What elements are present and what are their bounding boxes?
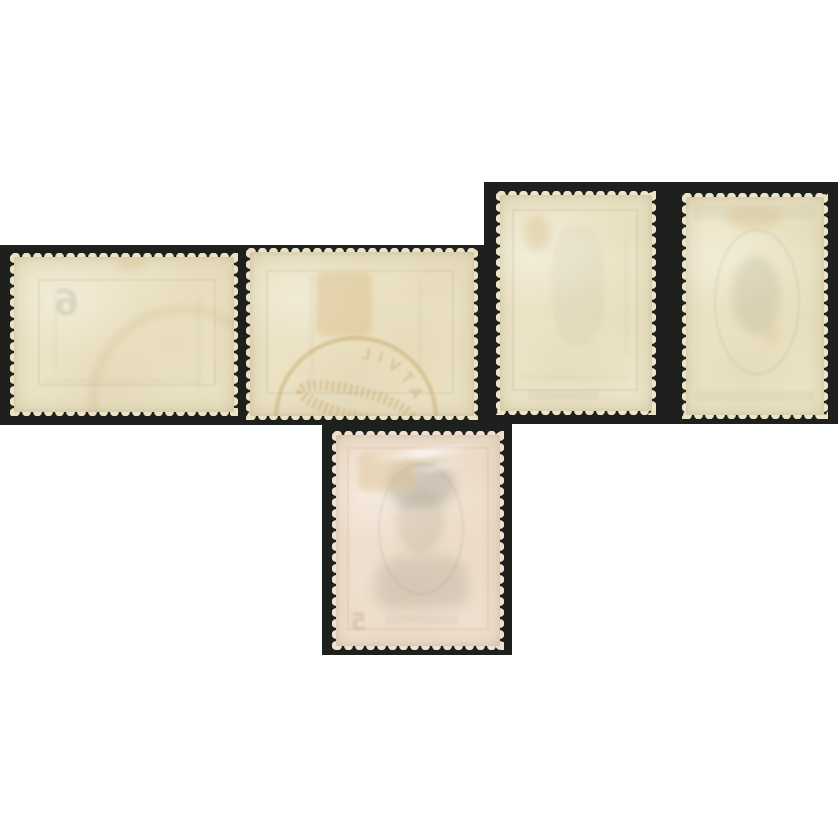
ghost-band [528,391,598,399]
ghost-portrait-face [396,489,444,553]
postmark-letters: ATVIL [354,344,426,401]
stamp-1-gum-side: 6 [14,257,234,412]
stamp-4 [682,193,828,419]
stamp-3-gum-side [500,195,652,411]
postmark-killer-bars [299,378,414,416]
postmark-showthrough: ATVIL [250,252,474,416]
ghost-band [625,235,628,355]
tan-smudge [524,215,550,251]
stamp-2-gum-side: ATVIL [250,252,474,416]
tan-smudge [726,207,782,229]
ghost-numeral-6: 6 [53,283,79,325]
stamp-5-gum-side: 5 [336,435,500,646]
ghost-band [386,616,458,624]
ghost-band [552,225,604,345]
stamp-1: 6 [10,253,238,416]
stamp-5: 5 [332,431,504,650]
stamp-photo: 6 ATVIL [0,0,840,840]
ghost-portrait-bust [376,555,468,607]
tan-smudge [118,259,144,269]
ghost-band [696,391,814,401]
ghost-portrait-shading [732,255,780,335]
stamp-4-gum-side [686,197,824,415]
stamp-2: ATVIL [246,248,478,420]
tan-smudge [764,325,780,345]
stamp-3 [496,191,656,415]
ghost-numeral-5: 5 [350,608,368,637]
ghost-band [520,376,628,379]
